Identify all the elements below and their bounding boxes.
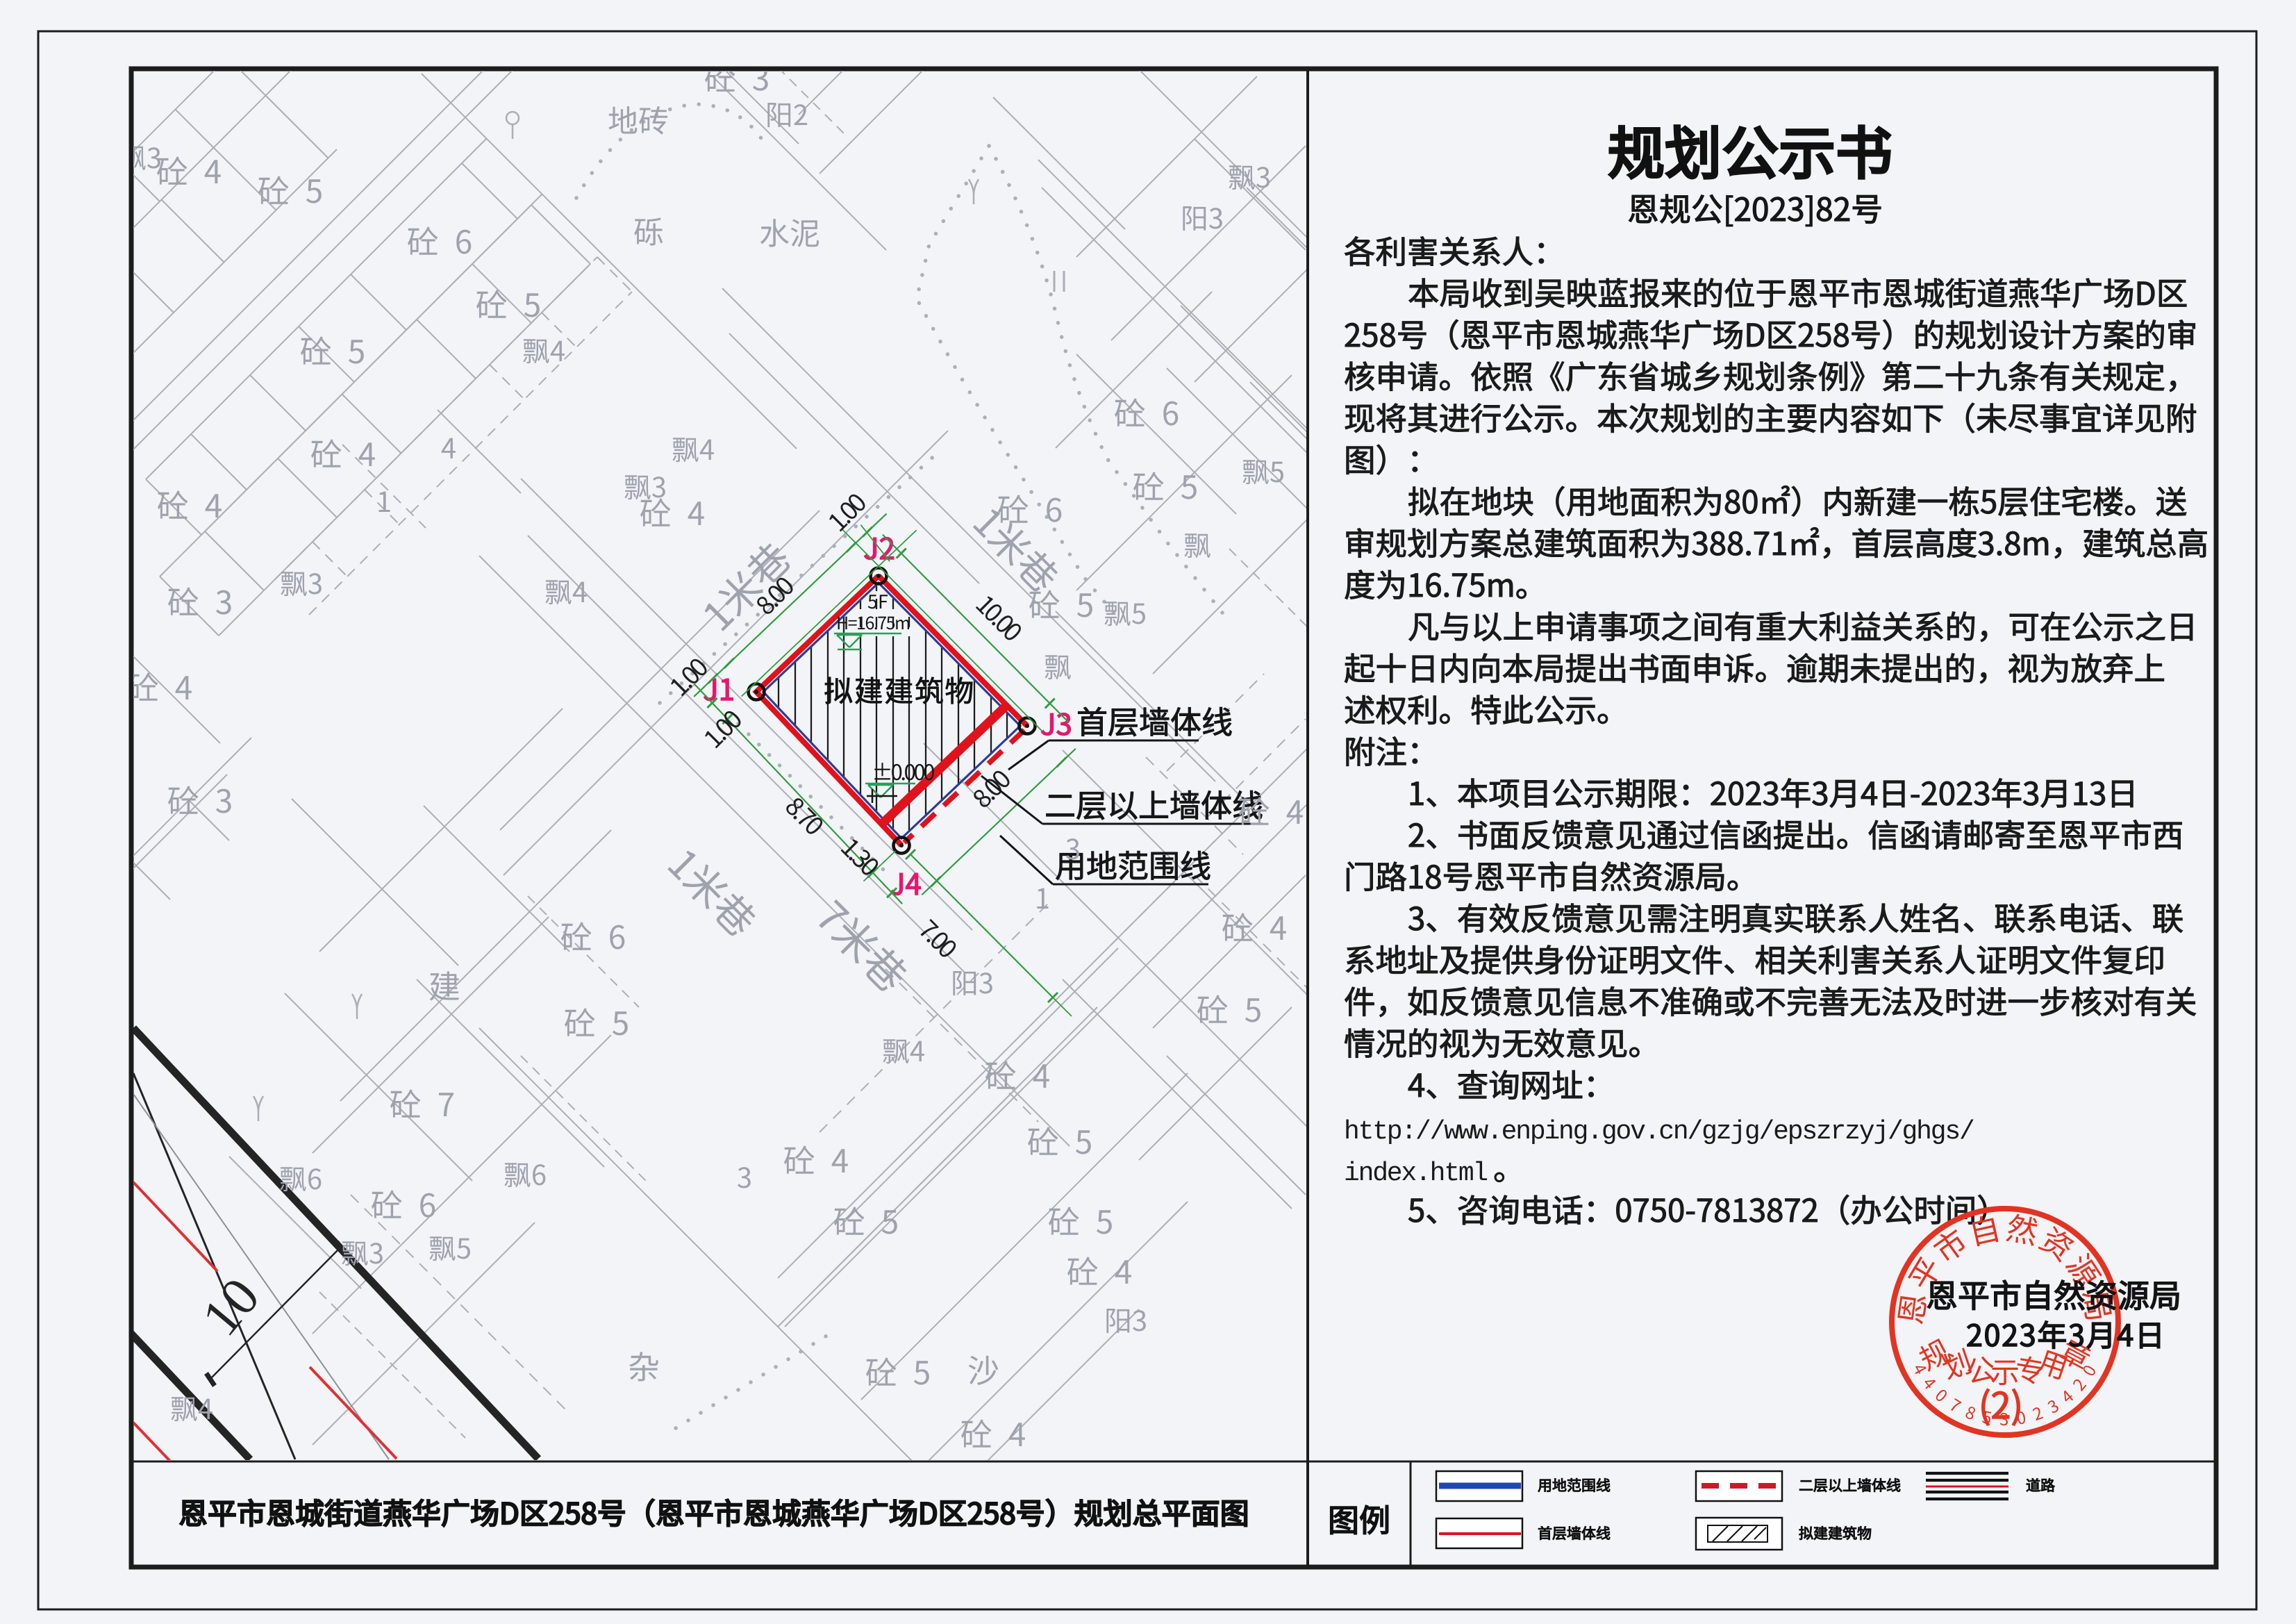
svg-text:http://www.enping.gov.cn/gzjg/: http://www.enping.gov.cn/gzjg/epszrzyj/g… [1344, 1117, 1974, 1147]
svg-text:index.html: index.html [1344, 1159, 1487, 1188]
